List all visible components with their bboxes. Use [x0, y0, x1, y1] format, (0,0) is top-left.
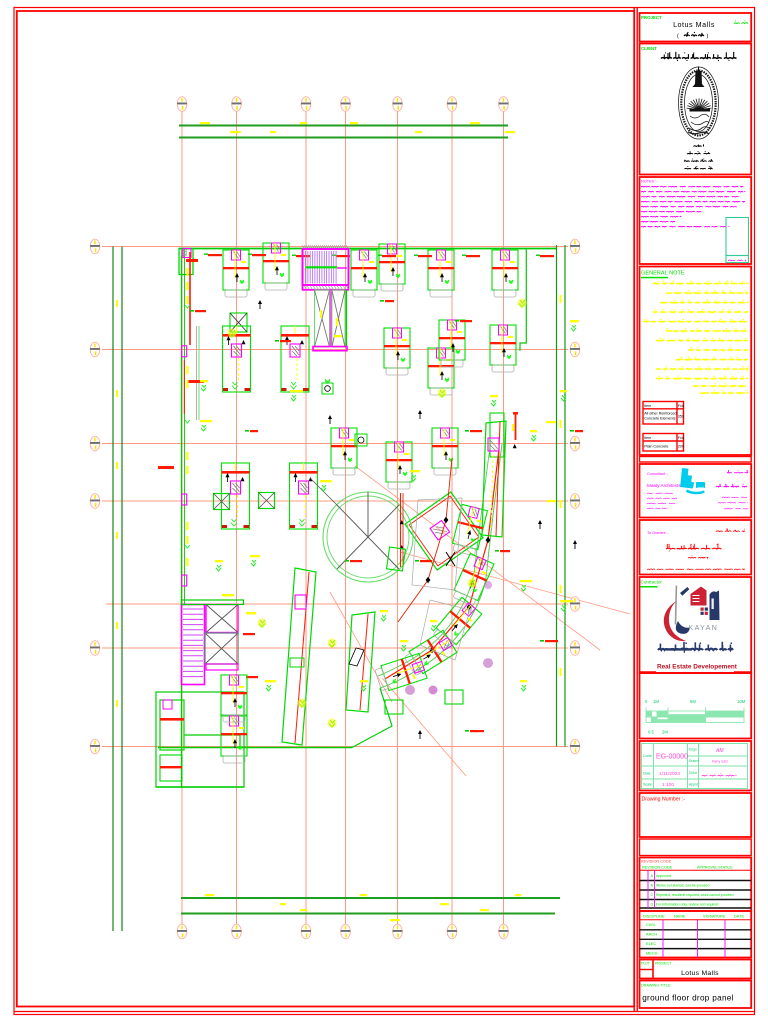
svg-text:Works not started, can be proc: Works not started, can be proceed	[656, 883, 709, 887]
svg-text:To Grantee ..: To Grantee ..	[647, 531, 669, 535]
svg-text:(: (	[677, 34, 679, 40]
svg-text:Consultant :-: Consultant :-	[647, 472, 669, 476]
svg-text:NOTES :-: NOTES :-	[641, 180, 658, 184]
svg-text:Dsgn: Dsgn	[689, 748, 697, 752]
svg-text:CIVIL: CIVIL	[646, 922, 657, 927]
svg-text:Concrete Elements: Concrete Elements	[644, 417, 676, 421]
svg-text:Drawing Number :-: Drawing Number :-	[642, 797, 686, 803]
svg-text:2M: 2M	[662, 730, 668, 735]
svg-text:): )	[707, 34, 709, 40]
svg-text:Rejected, resubmit required, w: Rejected, resubmit required, work cannot…	[656, 893, 733, 897]
svg-text:Maaty Architects: Maaty Architects	[647, 483, 681, 488]
svg-text:ARCH: ARCH	[646, 931, 657, 936]
svg-text:CLIENT: CLIENT	[641, 46, 657, 51]
svg-text:200: 200	[678, 445, 684, 449]
svg-text:KAYAN: KAYAN	[689, 625, 719, 632]
svg-text:Lotus Malls: Lotus Malls	[681, 970, 719, 977]
svg-text:NAME: NAME	[674, 914, 686, 919]
svg-text:DRAWING TITLE: DRAWING TITLE	[641, 984, 671, 988]
svg-text:Chkd: Chkd	[689, 771, 697, 775]
svg-text:PROJECT: PROJECT	[641, 15, 662, 20]
svg-text:REVISION CODE: REVISION CODE	[642, 866, 673, 870]
svg-text:0: 0	[645, 699, 648, 704]
svg-text:GENERAL NOTE: GENERAL NOTE	[641, 271, 685, 277]
svg-text:Contractor: Contractor	[641, 580, 663, 585]
svg-text:A: A	[651, 874, 654, 878]
svg-text:1M: 1M	[653, 699, 659, 704]
svg-text:MECH: MECH	[646, 950, 658, 955]
svg-text:For information only, review n: For information only, review not require…	[656, 902, 718, 906]
svg-text:PLOT: PLOT	[641, 962, 651, 966]
svg-text:Item: Item	[644, 436, 651, 440]
svg-text:Item: Item	[644, 404, 651, 408]
svg-text:All other Reinforced: All other Reinforced	[644, 412, 676, 416]
svg-text:hany aziz: hany aziz	[712, 760, 728, 764]
svg-text:D: D	[651, 902, 654, 906]
svg-text:Real Estate Developement: Real Estate Developement	[657, 664, 738, 671]
svg-text:PROJECT: PROJECT	[655, 962, 672, 966]
svg-text:EG-00000: EG-00000	[656, 754, 688, 761]
svg-text:1:100: 1:100	[662, 782, 674, 788]
svg-text:1/11/2023: 1/11/2023	[659, 771, 680, 777]
svg-text:AM: AM	[715, 748, 724, 754]
svg-text:Scale: Scale	[643, 783, 652, 787]
svg-text:350: 350	[678, 415, 684, 419]
svg-text:SIGNATURE: SIGNATURE	[703, 914, 726, 919]
svg-text:DATE: DATE	[734, 914, 744, 919]
svg-text:Approved: Approved	[656, 874, 671, 878]
svg-text:REVISION CODE: REVISION CODE	[641, 860, 672, 864]
svg-text:Plain Concrete: Plain Concrete	[644, 445, 668, 449]
svg-text:Drawn: Drawn	[689, 759, 699, 763]
svg-text:ground floor drop panel: ground floor drop panel	[642, 994, 734, 1003]
svg-text:Code: Code	[643, 754, 652, 758]
svg-text:Lotus Malls: Lotus Malls	[673, 20, 715, 29]
svg-text:Fcu: Fcu	[678, 404, 684, 408]
svg-text:0.5: 0.5	[648, 730, 654, 735]
svg-text:APPROVAL STATUS: APPROVAL STATUS	[697, 866, 733, 870]
svg-text:DISCIPLINE: DISCIPLINE	[643, 914, 665, 919]
svg-text:Fcu: Fcu	[678, 436, 684, 440]
svg-text:Date: Date	[643, 772, 651, 776]
svg-text:Apprd: Apprd	[689, 783, 698, 787]
svg-text:5M: 5M	[690, 699, 696, 704]
svg-text:C: C	[651, 893, 654, 897]
svg-text:10M: 10M	[737, 699, 746, 704]
svg-text:ELEC: ELEC	[646, 941, 656, 946]
svg-text:B: B	[651, 883, 654, 887]
